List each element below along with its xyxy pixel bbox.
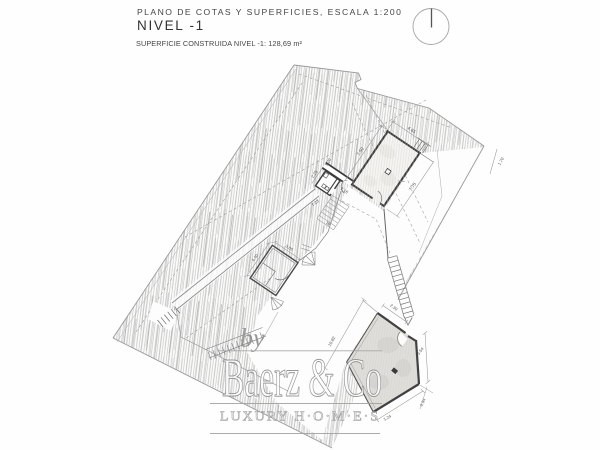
- svg-text:SUPERFICIE CONSTRUIDA NIVEL -1: SUPERFICIE CONSTRUIDA NIVEL -1: 128,69 m…: [136, 39, 302, 48]
- svg-text:NIVEL -1: NIVEL -1: [137, 18, 205, 33]
- svg-text:Baerz & Co: Baerz & Co: [222, 347, 382, 408]
- svg-text:PLANO DE COTAS Y SUPERFICIES,: PLANO DE COTAS Y SUPERFICIES, ESCALA 1:2…: [137, 7, 402, 17]
- svg-text:LUXURY H·O·M·E·S: LUXURY H·O·M·E·S: [220, 410, 380, 425]
